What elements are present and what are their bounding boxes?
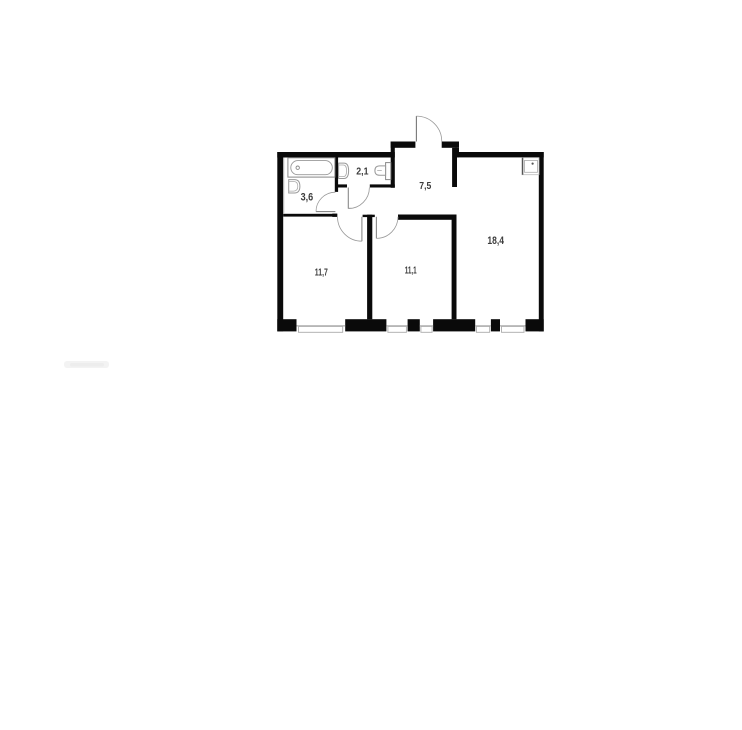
svg-text:18,4: 18,4 <box>487 235 504 247</box>
svg-text:11,1: 11,1 <box>405 264 417 276</box>
svg-text:7,5: 7,5 <box>419 180 431 192</box>
svg-text:11,7: 11,7 <box>315 267 328 279</box>
svg-text:2,1: 2,1 <box>356 166 368 178</box>
svg-text:3,6: 3,6 <box>301 192 314 204</box>
